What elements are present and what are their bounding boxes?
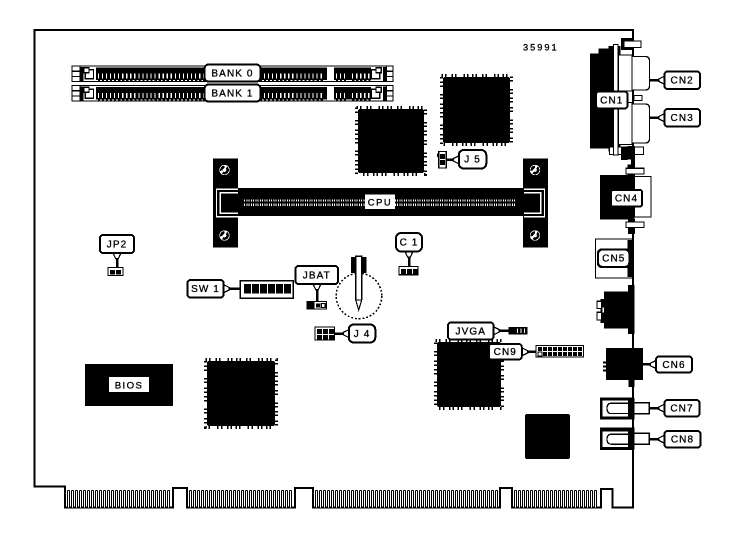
svg-text:J 4: J 4 xyxy=(354,329,371,340)
svg-text:C 1: C 1 xyxy=(400,238,419,249)
svg-text:35991: 35991 xyxy=(523,43,559,53)
svg-text:SW 1: SW 1 xyxy=(191,284,220,295)
svg-text:JP2: JP2 xyxy=(107,239,128,250)
svg-text:CN1: CN1 xyxy=(600,95,623,106)
svg-text:CN4: CN4 xyxy=(615,194,638,205)
svg-text:CN3: CN3 xyxy=(671,113,694,124)
svg-text:CN6: CN6 xyxy=(662,360,685,371)
svg-text:BANK 1: BANK 1 xyxy=(211,88,253,99)
svg-text:CN2: CN2 xyxy=(671,76,694,87)
svg-text:CPU: CPU xyxy=(368,196,393,207)
svg-text:CN7: CN7 xyxy=(670,404,693,415)
svg-text:BANK 0: BANK 0 xyxy=(211,68,253,79)
svg-text:JVGA: JVGA xyxy=(456,326,487,337)
svg-text:CN8: CN8 xyxy=(671,435,694,446)
svg-text:CN9: CN9 xyxy=(494,347,517,358)
svg-text:CN5: CN5 xyxy=(602,254,625,265)
svg-text:BIOS: BIOS xyxy=(115,381,144,392)
svg-text:JBAT: JBAT xyxy=(303,270,331,281)
svg-text:J 5: J 5 xyxy=(464,155,481,166)
